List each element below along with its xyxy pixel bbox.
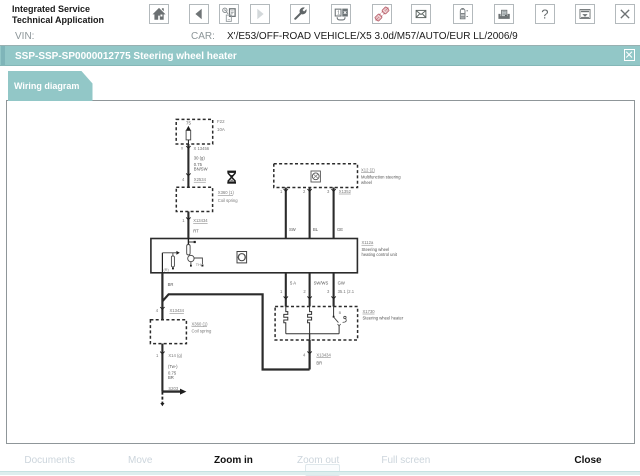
svg-text:X112a: X112a — [362, 240, 374, 245]
svg-text:Multifunction steering: Multifunction steering — [361, 175, 401, 180]
svg-text:10A: 10A — [217, 127, 225, 132]
svg-text:BN/SW: BN/SW — [194, 166, 208, 171]
svg-text:4: 4 — [182, 177, 185, 182]
svg-text:GE: GE — [337, 227, 343, 232]
svg-text:BR: BR — [168, 282, 174, 287]
svg-text:X13434: X13434 — [170, 308, 185, 313]
svg-text:35.1 (2.1: 35.1 (2.1 — [338, 289, 355, 294]
svg-text:X2534: X2534 — [194, 177, 207, 182]
svg-text:1: 1 — [280, 189, 283, 194]
svg-text:(R): (R) — [164, 268, 170, 272]
svg-text:Coil spring: Coil spring — [218, 198, 238, 203]
svg-text:4: 4 — [156, 308, 159, 313]
svg-text:SW: SW — [289, 227, 296, 232]
svg-text:X13434: X13434 — [193, 218, 208, 223]
svg-text:1: 1 — [280, 289, 283, 294]
svg-text:X12 (2): X12 (2) — [361, 167, 375, 172]
svg-text:2: 2 — [303, 189, 306, 194]
svg-text:X360 (1): X360 (1) — [192, 321, 209, 326]
svg-text:X1352: X1352 — [339, 189, 352, 194]
svg-text:Coil spring: Coil spring — [192, 329, 212, 334]
svg-text:2: 2 — [303, 289, 306, 294]
svg-text:B: B — [339, 311, 342, 315]
svg-text:BR: BR — [168, 375, 174, 380]
svg-text:3: 3 — [327, 289, 330, 294]
svg-text:5 A: 5 A — [290, 281, 296, 286]
svg-text:1: 1 — [156, 353, 159, 358]
svg-text:3: 3 — [327, 189, 330, 194]
svg-text:x: x — [181, 146, 184, 151]
svg-text:TH: TH — [196, 263, 201, 267]
svg-text:S203: S203 — [168, 386, 178, 391]
svg-text:X14 (g): X14 (g) — [168, 353, 182, 358]
svg-text:30 (g): 30 (g) — [194, 156, 206, 161]
svg-text:RT: RT — [193, 228, 199, 233]
svg-text:4: 4 — [303, 352, 306, 357]
svg-text:1: 1 — [337, 10, 340, 16]
svg-text:(Tw-): (Tw-) — [168, 364, 178, 369]
svg-text:Steering wheel heater: Steering wheel heater — [363, 316, 404, 321]
svg-text:wheel: wheel — [361, 180, 372, 185]
svg-text:X360 (1): X360 (1) — [218, 190, 235, 195]
svg-text:?: ? — [541, 6, 548, 21]
svg-text:heating control unit: heating control unit — [362, 252, 398, 257]
svg-text:X 13456: X 13456 — [194, 146, 210, 151]
svg-text:75: 75 — [186, 120, 191, 125]
svg-text:BL: BL — [313, 227, 319, 232]
svg-text:X13434: X13434 — [316, 352, 331, 357]
svg-text:1: 1 — [182, 218, 185, 223]
svg-text:BR: BR — [316, 361, 322, 366]
svg-text:X1730: X1730 — [363, 309, 376, 314]
svg-text:F22: F22 — [217, 119, 225, 124]
svg-text:GW: GW — [338, 281, 345, 286]
svg-text:SW/WS: SW/WS — [314, 281, 329, 286]
